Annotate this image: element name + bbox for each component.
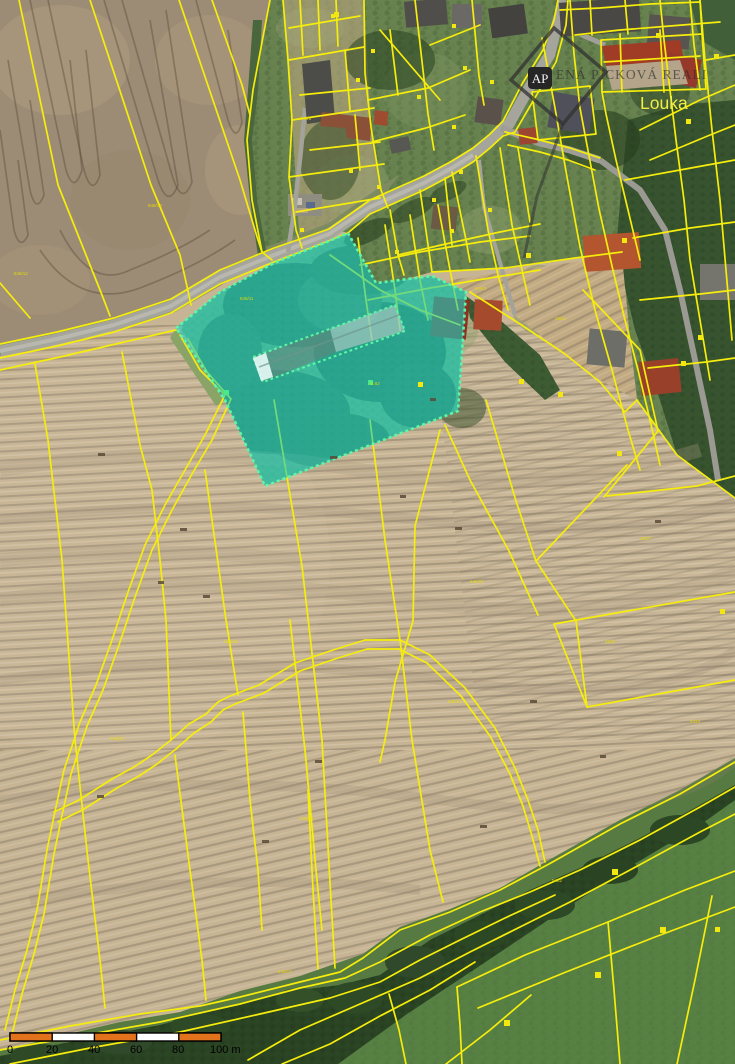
svg-text:st.62: st.62 [370, 381, 380, 386]
svg-text:0: 0 [7, 1044, 13, 1056]
svg-text:80: 80 [172, 1044, 184, 1056]
svg-text:452/1: 452/1 [555, 316, 567, 321]
svg-text:100 m: 100 m [210, 1044, 241, 1056]
svg-text:20: 20 [46, 1044, 58, 1056]
svg-text:ENÁ PICKOVÁ REALI: ENÁ PICKOVÁ REALI [556, 67, 707, 82]
svg-text:846/21: 846/21 [448, 699, 462, 704]
svg-text:5432: 5432 [552, 878, 563, 883]
svg-text:846/17: 846/17 [278, 969, 292, 974]
svg-text:40: 40 [88, 1044, 100, 1056]
svg-text:846/18: 846/18 [110, 736, 124, 741]
svg-text:452/7: 452/7 [640, 536, 652, 541]
svg-text:846/22: 846/22 [470, 579, 484, 584]
svg-text:5433: 5433 [690, 719, 701, 724]
svg-text:846/3: 846/3 [475, 286, 487, 291]
svg-text:846/8: 846/8 [300, 116, 312, 121]
svg-text:AP: AP [532, 71, 549, 86]
svg-text:846/15: 846/15 [300, 816, 314, 821]
svg-text:846/10: 846/10 [148, 203, 162, 208]
svg-text:846/11: 846/11 [240, 296, 254, 301]
svg-text:60: 60 [130, 1044, 142, 1056]
svg-text:4628: 4628 [605, 639, 616, 644]
svg-text:846/12: 846/12 [14, 271, 28, 276]
svg-text:Louka: Louka [640, 93, 688, 113]
svg-text:846/20: 846/20 [224, 639, 238, 644]
